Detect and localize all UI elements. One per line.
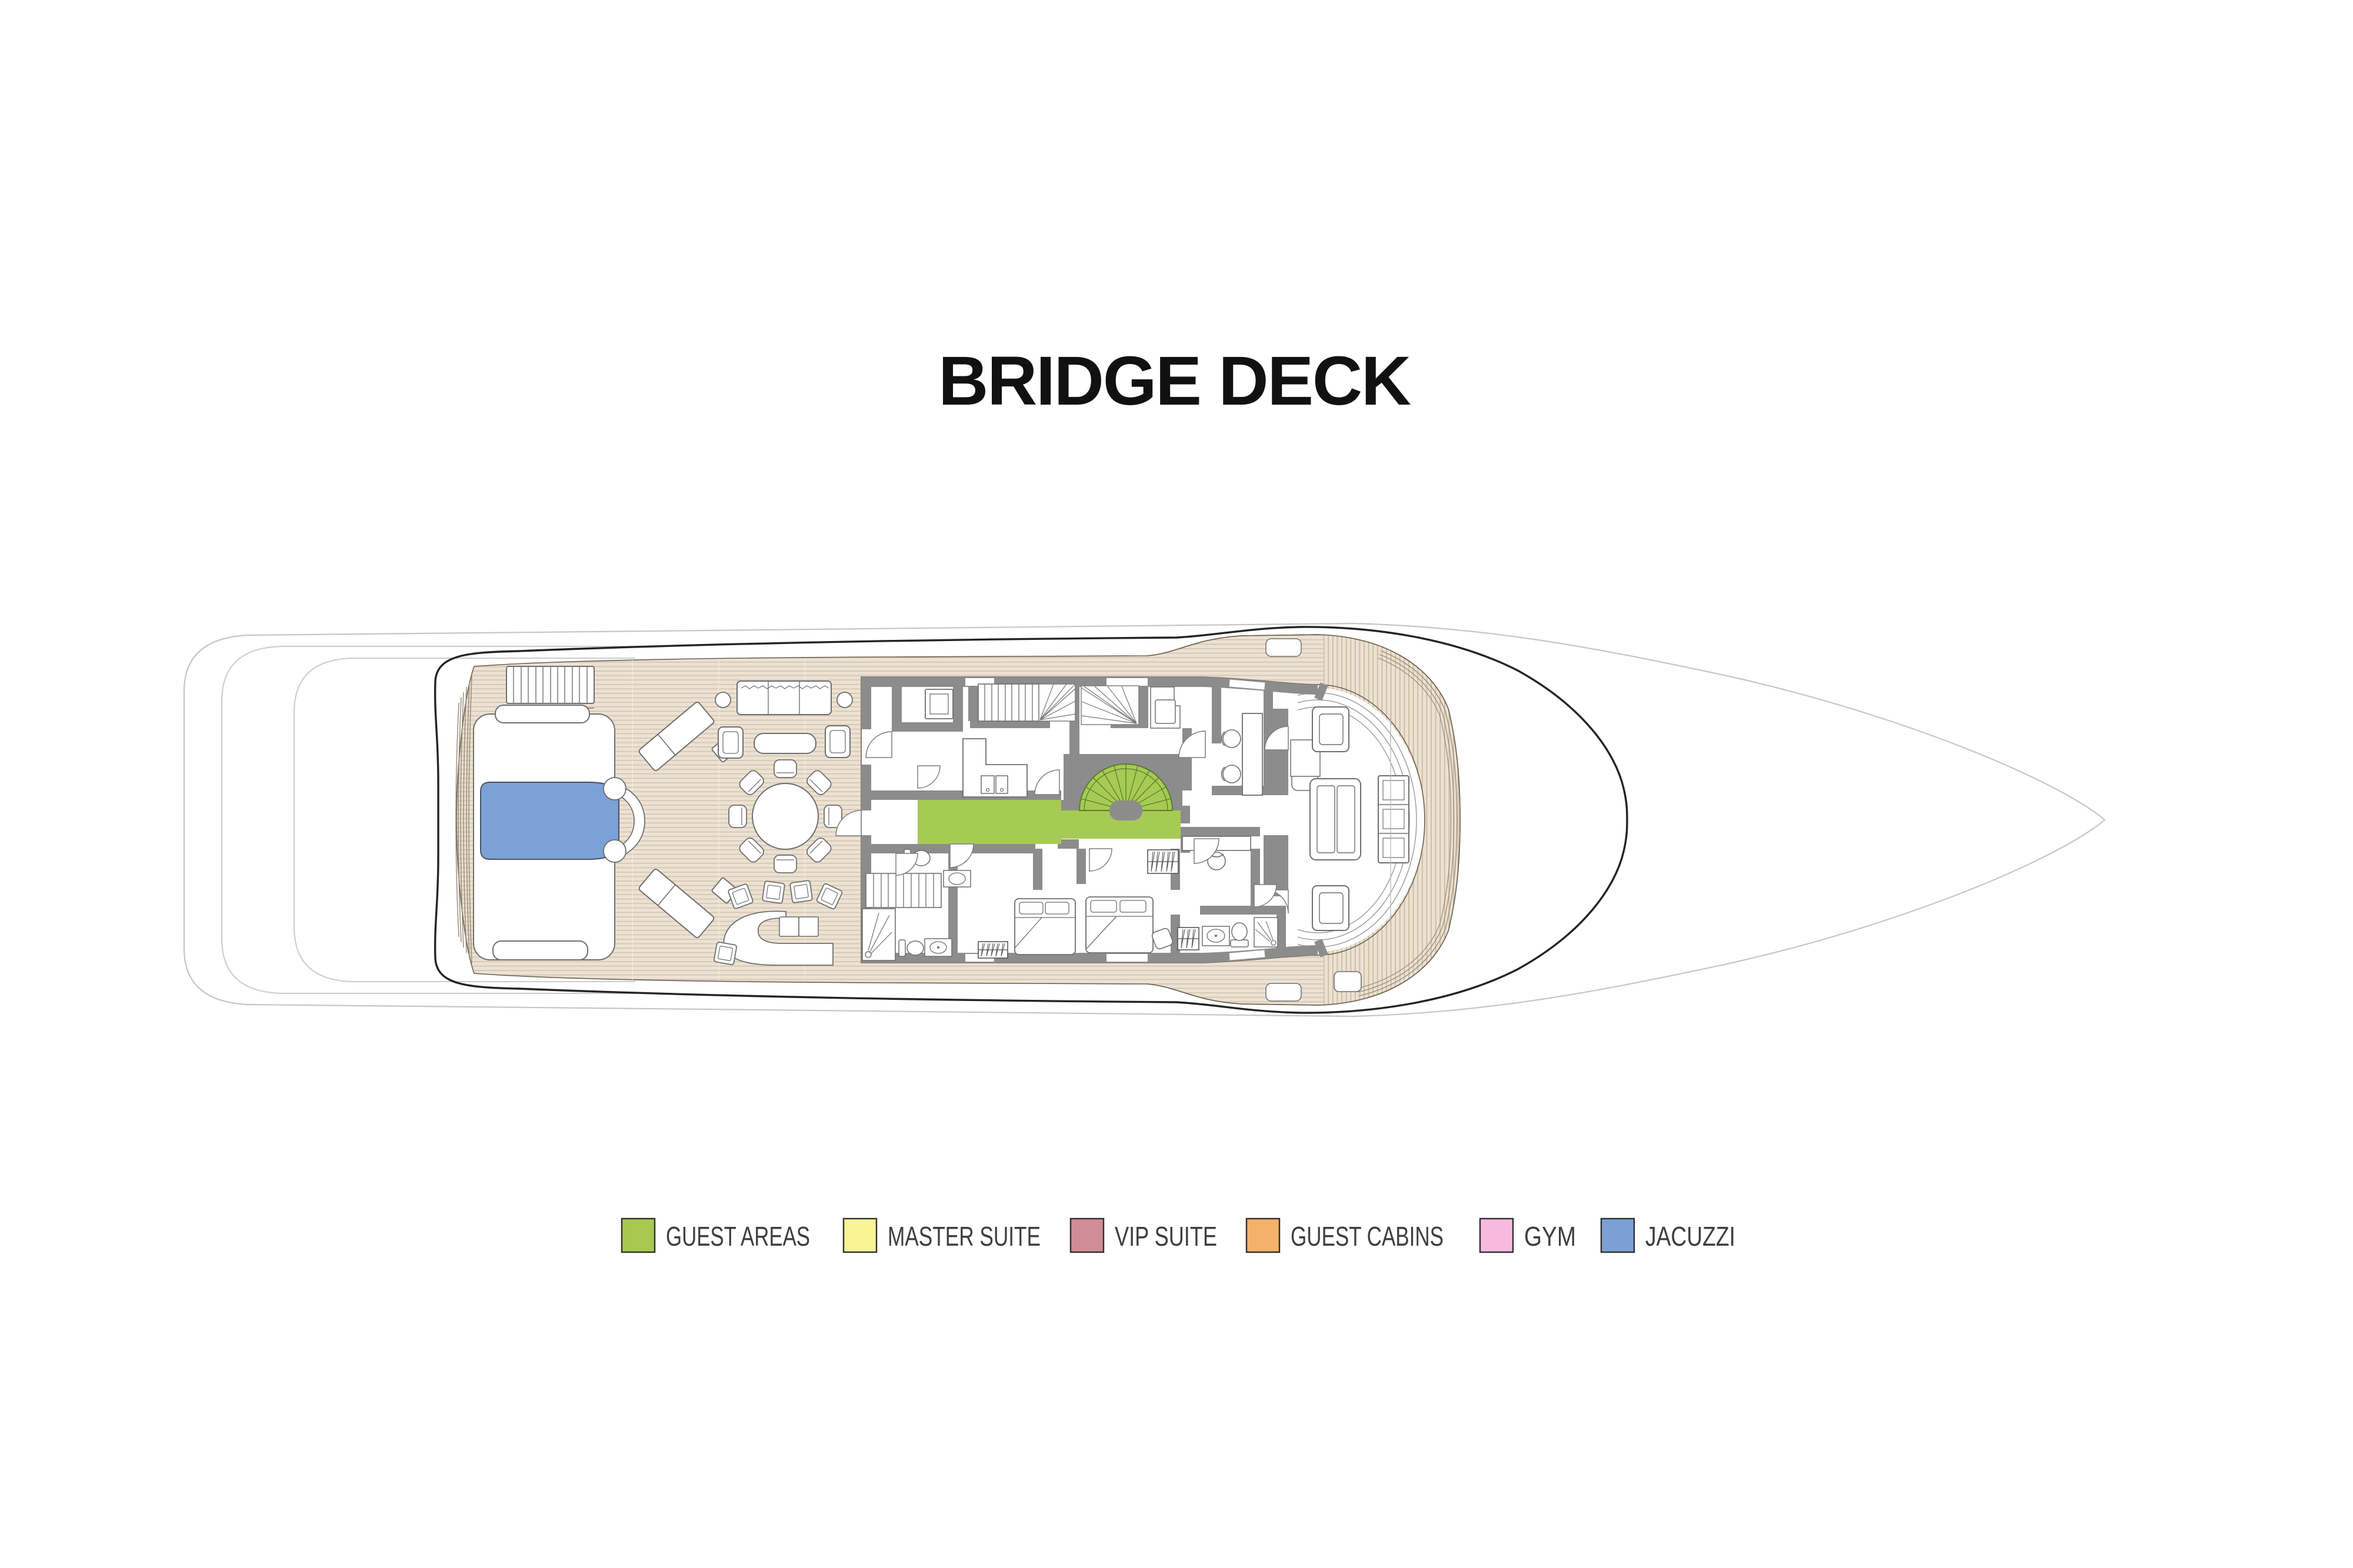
svg-text:MASTER SUITE: MASTER SUITE [888, 1221, 1041, 1252]
svg-text:VIP SUITE: VIP SUITE [1115, 1221, 1217, 1252]
svg-text:GUEST AREAS: GUEST AREAS [666, 1221, 810, 1252]
svg-text:JACUZZI: JACUZZI [1645, 1221, 1735, 1252]
svg-text:BRIDGE DECK: BRIDGE DECK [938, 342, 1411, 420]
svg-text:GYM: GYM [1524, 1221, 1576, 1252]
svg-text:GUEST CABINS: GUEST CABINS [1291, 1221, 1444, 1252]
